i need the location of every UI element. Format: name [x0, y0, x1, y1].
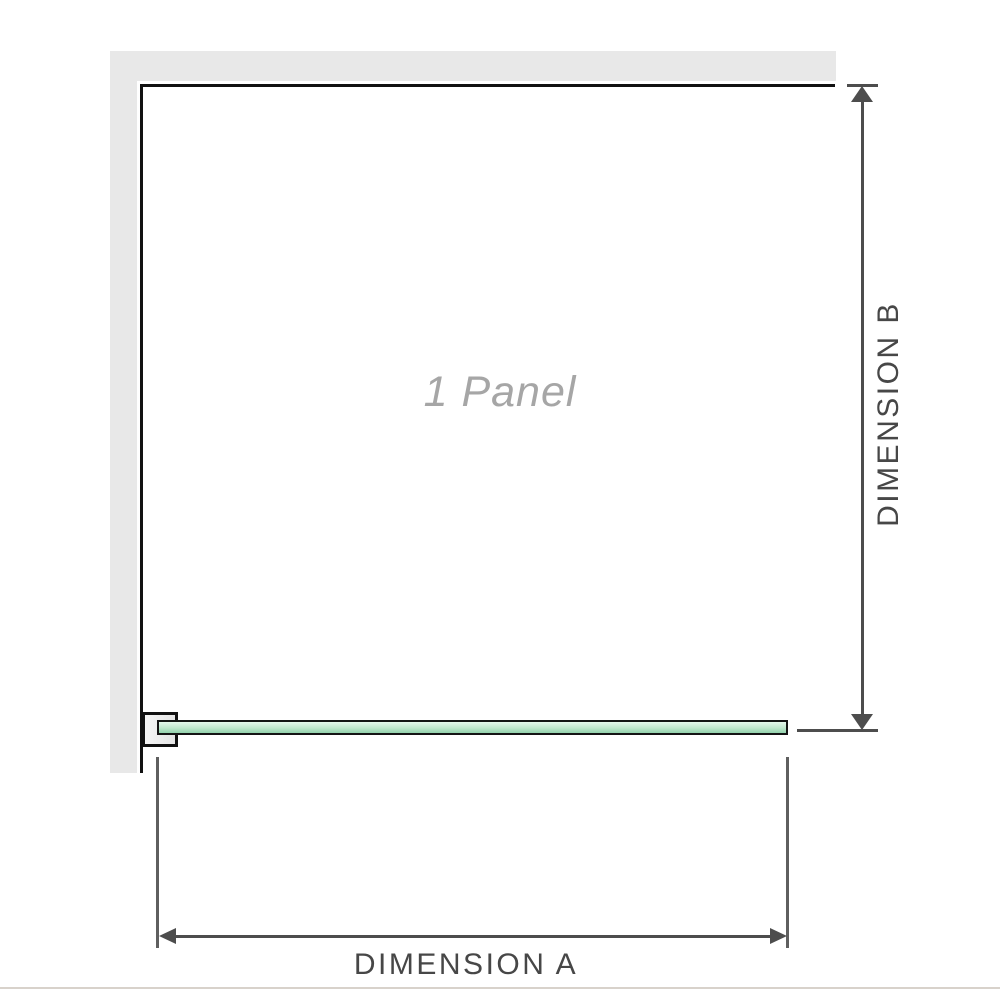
- panel-count-label: 1 Panel: [300, 368, 700, 417]
- dimension-b-line: [861, 95, 864, 720]
- wall-top: [110, 51, 836, 81]
- arrow-down-icon: [851, 714, 873, 730]
- panel-dimension-diagram: 1 Panel DIMENSION B DIMENSION A: [0, 0, 1000, 1000]
- footer-divider: [0, 987, 1000, 989]
- arrow-right-icon: [770, 928, 787, 944]
- wall-left: [110, 51, 137, 773]
- glass-panel: [157, 720, 788, 735]
- arrow-up-icon: [851, 86, 873, 102]
- dimension-a-label: DIMENSION A: [316, 948, 616, 982]
- panel-frame-top-edge: [140, 84, 835, 87]
- panel-frame-left-edge: [140, 84, 143, 773]
- dimension-b-label: DIMENSION B: [872, 301, 906, 527]
- dimension-a-line: [170, 935, 776, 938]
- arrow-left-icon: [159, 928, 176, 944]
- dimension-a-right-extension-line: [786, 757, 789, 948]
- dimension-a-left-extension-line: [156, 757, 159, 948]
